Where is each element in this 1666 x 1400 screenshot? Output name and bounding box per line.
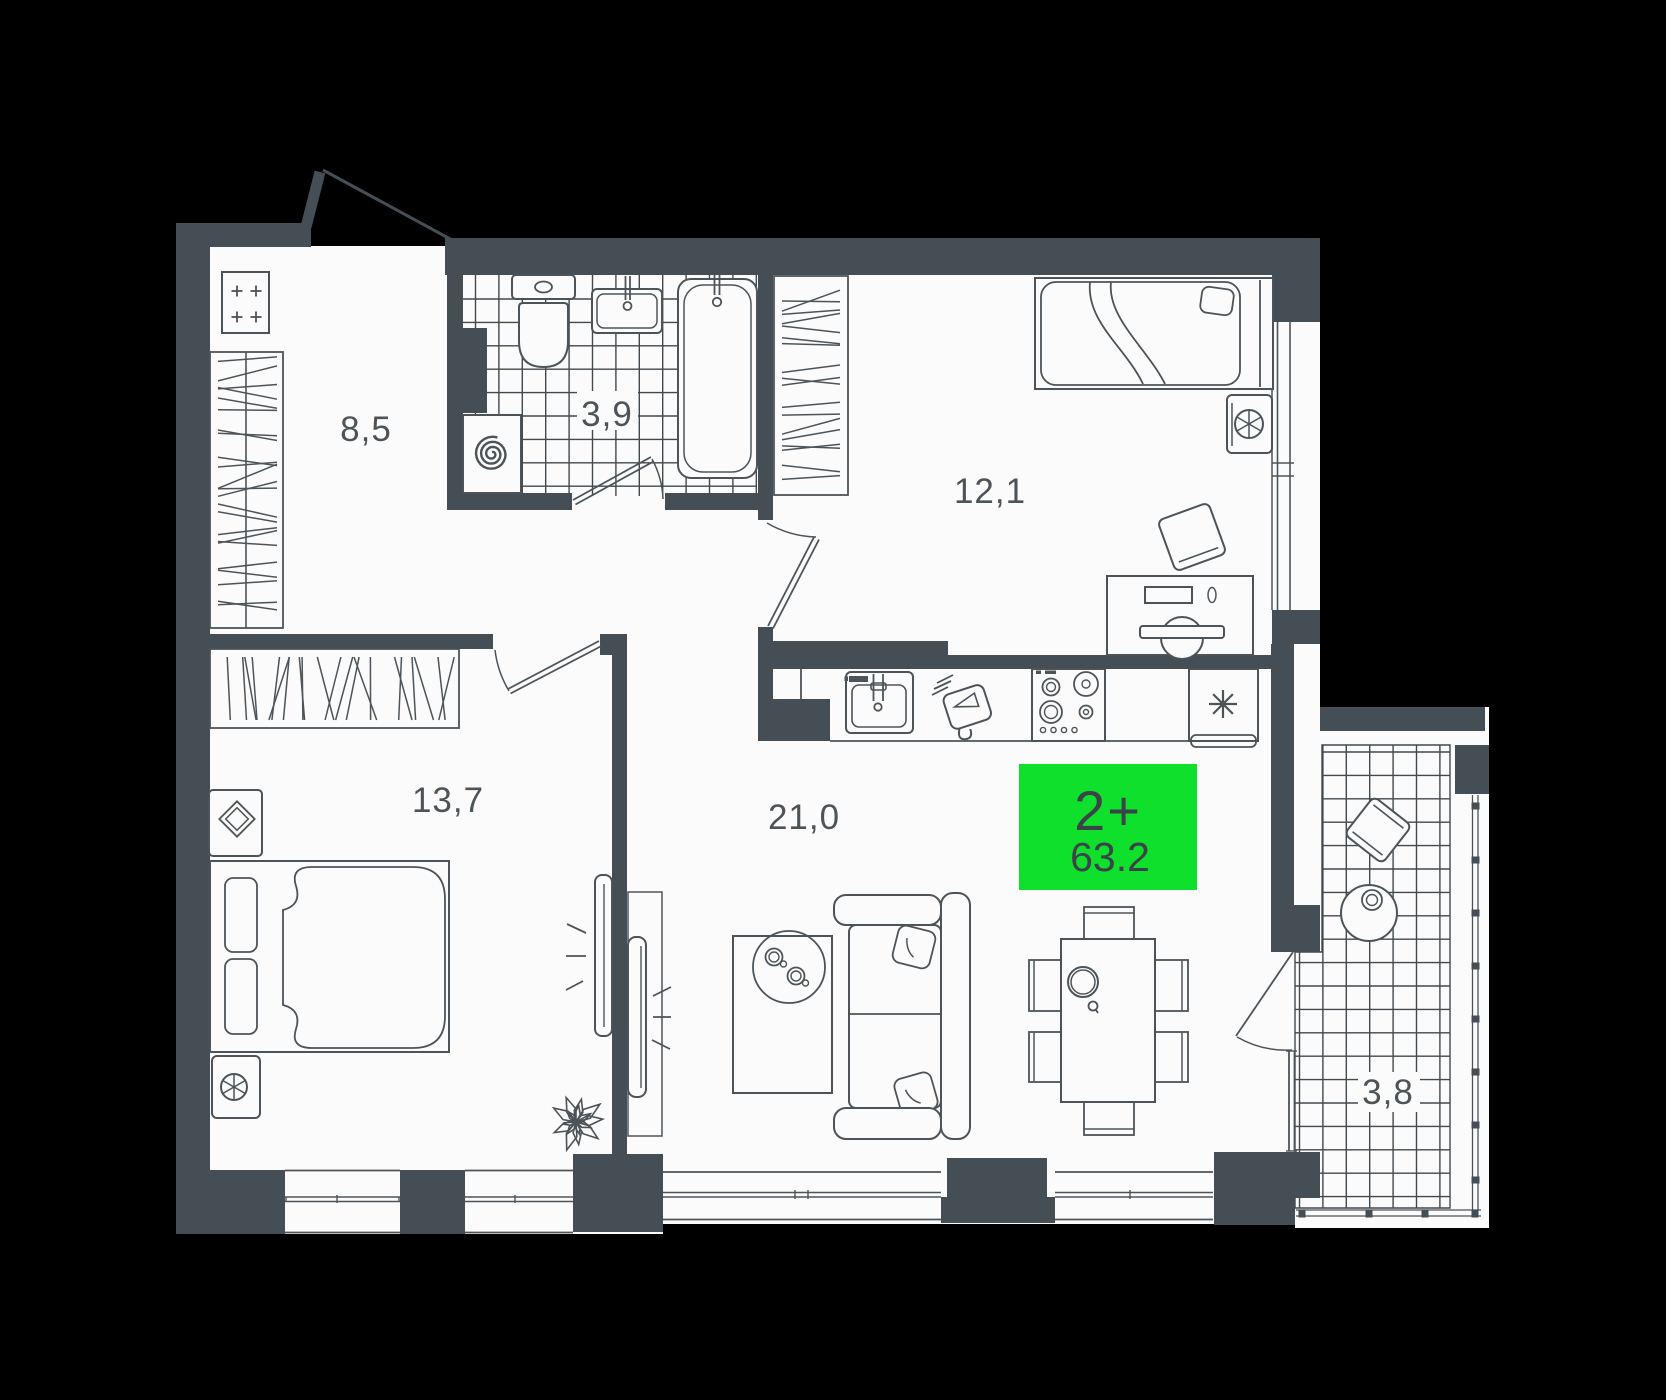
svg-text:2+: 2+ [1074, 779, 1142, 842]
svg-text:13,7: 13,7 [412, 781, 484, 820]
svg-text:21,0: 21,0 [768, 798, 840, 837]
svg-text:3,9: 3,9 [581, 395, 633, 434]
svg-text:3,8: 3,8 [1362, 1073, 1414, 1112]
svg-text:63.2: 63.2 [1070, 834, 1150, 880]
svg-text:12,1: 12,1 [954, 472, 1026, 511]
svg-text:8,5: 8,5 [340, 410, 392, 449]
